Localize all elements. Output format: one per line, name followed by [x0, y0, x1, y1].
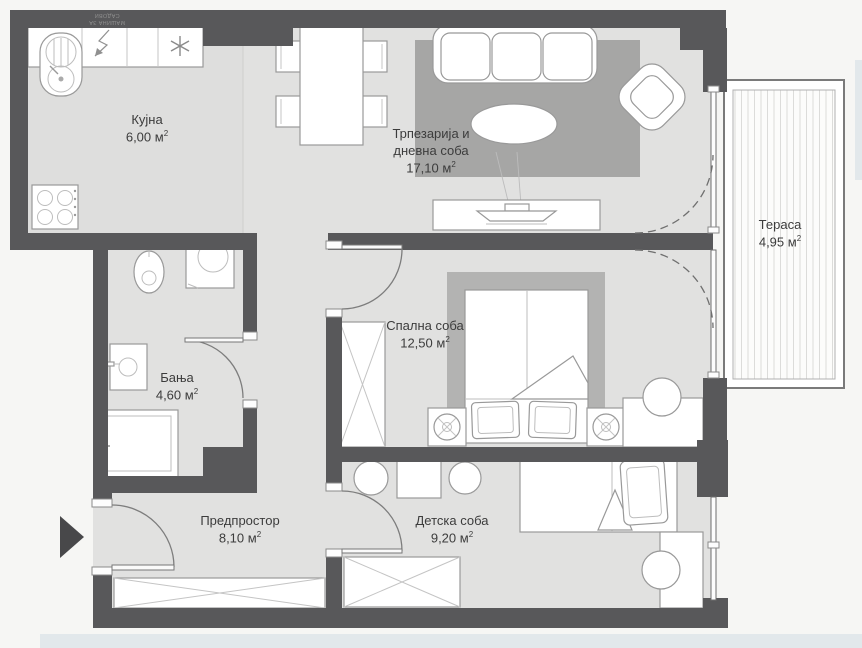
room-name: дневна соба [392, 143, 469, 160]
door-jamb [326, 241, 342, 249]
room-area: 8,10 м2 [200, 530, 279, 547]
wall-bedroom-west [326, 317, 342, 447]
stove [32, 185, 78, 229]
entrance-arrow-icon [60, 516, 84, 558]
door-jamb [92, 499, 112, 507]
room-label-bathroom: Бања 4,60 м2 [156, 370, 198, 404]
dining-chair [362, 41, 387, 72]
wall-kids-west-bottom [326, 557, 342, 608]
room-area: 12,50 м2 [386, 335, 464, 352]
wall-kids-west-top [326, 462, 342, 483]
window-jamb [708, 86, 719, 92]
room-label-kids: Детска соба 9,20 м2 [416, 513, 489, 547]
room-name: Трпезарија и [392, 126, 469, 143]
floor-plan: Кујна 6,00 м2 Трпезарија и дневна соба 1… [0, 0, 862, 648]
wall-below-terrace [703, 378, 727, 448]
window-living-terrace [711, 90, 716, 233]
pillow [528, 401, 576, 439]
kids-table [397, 458, 441, 498]
window-jamb [708, 372, 719, 378]
wall-kitchen-bathroom [10, 233, 257, 250]
window-jamb [708, 542, 719, 548]
room-area: 17,10 м2 [392, 160, 469, 177]
room-name: Спална соба [386, 318, 464, 335]
wall-left-kitchen [10, 10, 28, 250]
pillow [471, 401, 519, 439]
wall-bathroom-left [93, 250, 108, 476]
room-name: Детска соба [416, 513, 489, 530]
wall-bathroom-right-lower [243, 408, 257, 476]
neighbor-strip-right [855, 60, 862, 180]
bathroom-door-leaf [185, 338, 243, 342]
room-label-hall: Предпростор 8,10 м2 [200, 513, 279, 547]
room-name: Кујна [126, 112, 168, 129]
wall-corner-step [703, 28, 727, 92]
bedroom-wardrobe [340, 322, 385, 447]
window-jamb [708, 227, 719, 233]
kids-chair [449, 462, 481, 494]
dishwasher-label-line: САДОВИ [84, 12, 130, 19]
kids-desk-chair [642, 551, 680, 589]
door-jamb [326, 483, 342, 491]
kids-door-leaf [342, 549, 402, 553]
dishwasher-label-line: МАШИНА ЗА [84, 19, 130, 26]
hall-wardrobe [114, 578, 325, 608]
wall-shower-nook [203, 447, 243, 476]
kids-bed [520, 453, 677, 532]
dining-chair [362, 96, 387, 127]
neighbor-strip-bottom [40, 634, 862, 648]
sofa [433, 25, 597, 83]
room-name: Предпростор [200, 513, 279, 530]
room-name: Тераса [759, 217, 802, 234]
front-door-leaf [112, 565, 174, 570]
wall-hall-left-top [93, 476, 112, 499]
wall-bathroom-bottom [93, 476, 257, 493]
room-area: 9,20 м2 [416, 530, 489, 547]
room-label-bedroom: Спална соба 12,50 м2 [386, 318, 464, 352]
room-area: 4,60 м2 [156, 387, 198, 404]
room-name: Бања [156, 370, 198, 387]
room-label-kitchen: Кујна 6,00 м2 [126, 112, 168, 146]
room-area: 4,95 м2 [759, 234, 802, 251]
dining-chair [276, 96, 301, 127]
bedroom-stool [643, 378, 681, 416]
room-label-living: Трпезарија и дневна соба 17,10 м2 [392, 126, 469, 177]
bathroom-sink [107, 344, 147, 390]
dining-table [300, 24, 363, 145]
kitchen-sink [40, 33, 82, 96]
wall-bedroom-kids-divider [326, 447, 713, 462]
door-jamb [243, 332, 257, 340]
wall-bathroom-right-upper [243, 250, 257, 332]
double-bed [465, 290, 588, 443]
pillow [620, 459, 668, 526]
wall-hall-left-bottom [93, 575, 112, 608]
kids-chair [354, 461, 388, 495]
bedroom-door-leaf [342, 245, 402, 249]
wall-corner-bottom-right [703, 598, 728, 628]
dishwasher-label: МАШИНА ЗА САДОВИ [84, 12, 130, 25]
door-jamb [92, 567, 112, 575]
room-area: 6,00 м2 [126, 129, 168, 146]
door-jamb [243, 400, 257, 408]
door-jamb [326, 309, 342, 317]
wall-divider-chunk [697, 440, 728, 497]
lamp-icon [434, 414, 460, 440]
kids-wardrobe [344, 557, 460, 607]
lamp-icon [593, 414, 619, 440]
coffee-table [471, 104, 557, 144]
room-label-terrace: Тераса 4,95 м2 [759, 217, 802, 251]
door-jamb [326, 549, 342, 557]
wall-bottom [93, 608, 728, 628]
wall-top-pillar [203, 10, 293, 46]
